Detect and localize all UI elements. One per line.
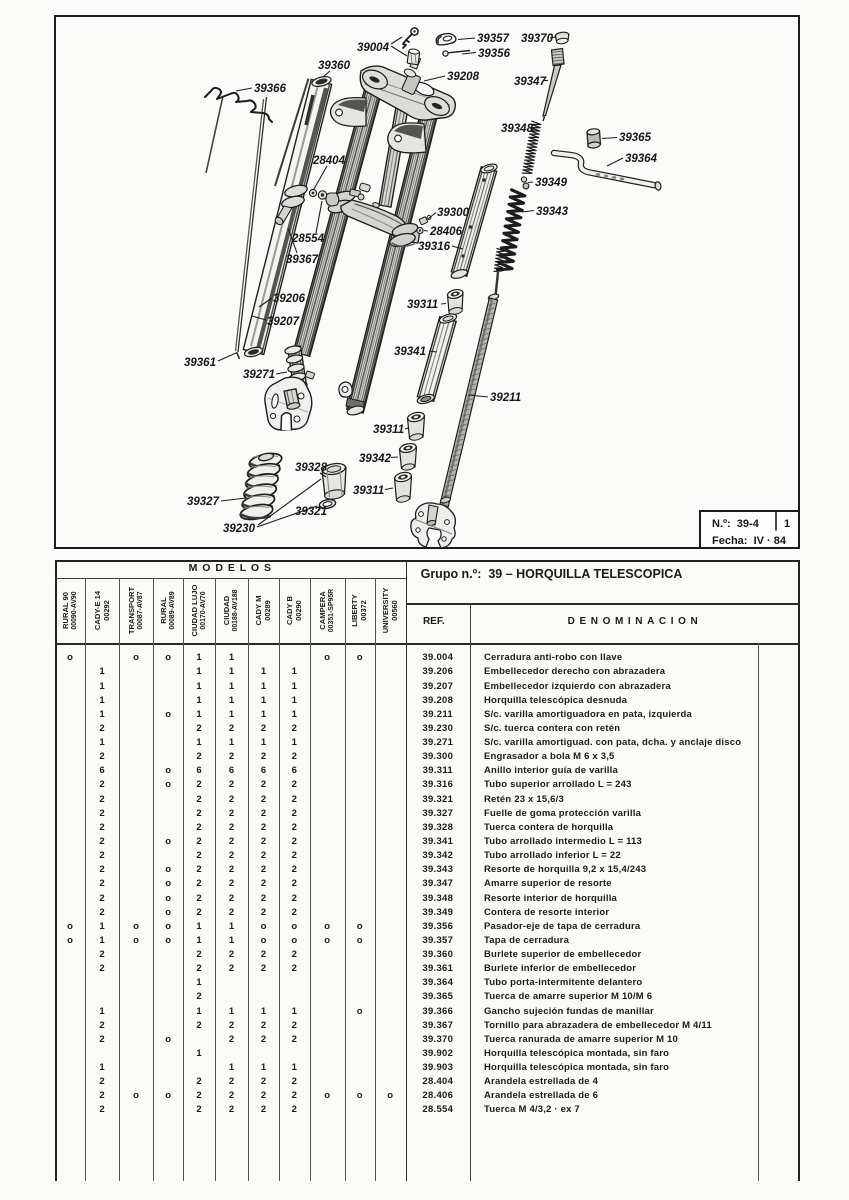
svg-text:39357: 39357 [477, 33, 510, 45]
svg-text:39328: 39328 [295, 462, 328, 474]
svg-text:39211: 39211 [490, 392, 521, 404]
svg-text:39004: 39004 [357, 42, 390, 54]
svg-text:39208: 39208 [447, 71, 480, 83]
svg-text:39349: 39349 [535, 177, 568, 189]
svg-text:Fecha: IV · 84: Fecha: IV · 84 [712, 535, 787, 547]
svg-text:39341: 39341 [394, 346, 426, 358]
svg-text:39356: 39356 [478, 48, 511, 60]
svg-text:39361: 39361 [184, 357, 216, 369]
svg-text:39367: 39367 [286, 254, 319, 266]
svg-text:39271: 39271 [243, 369, 275, 381]
svg-text:39207: 39207 [267, 316, 300, 328]
svg-text:39316: 39316 [418, 241, 451, 253]
svg-text:39364: 39364 [625, 153, 658, 165]
svg-text:39311: 39311 [373, 424, 404, 436]
svg-text:39365: 39365 [619, 132, 652, 144]
svg-text:28404: 28404 [312, 155, 346, 167]
svg-text:39370: 39370 [521, 33, 554, 45]
svg-text:39311: 39311 [407, 299, 438, 311]
svg-text:39230: 39230 [223, 523, 256, 535]
svg-text:39206: 39206 [273, 293, 306, 305]
svg-text:39348: 39348 [501, 123, 534, 135]
svg-text:N.º: 39-4: N.º: 39-4 [712, 518, 760, 530]
svg-text:39343: 39343 [536, 206, 569, 218]
svg-text:28406: 28406 [429, 226, 463, 238]
svg-text:39300: 39300 [437, 207, 470, 219]
svg-text:39347: 39347 [514, 76, 547, 88]
svg-text:39311: 39311 [353, 485, 384, 497]
svg-text:39342: 39342 [359, 453, 392, 465]
svg-text:28554: 28554 [291, 233, 325, 245]
svg-text:39366: 39366 [254, 83, 287, 95]
svg-text:39327: 39327 [187, 496, 220, 508]
svg-text:1: 1 [784, 518, 790, 530]
svg-text:39360: 39360 [318, 60, 351, 72]
